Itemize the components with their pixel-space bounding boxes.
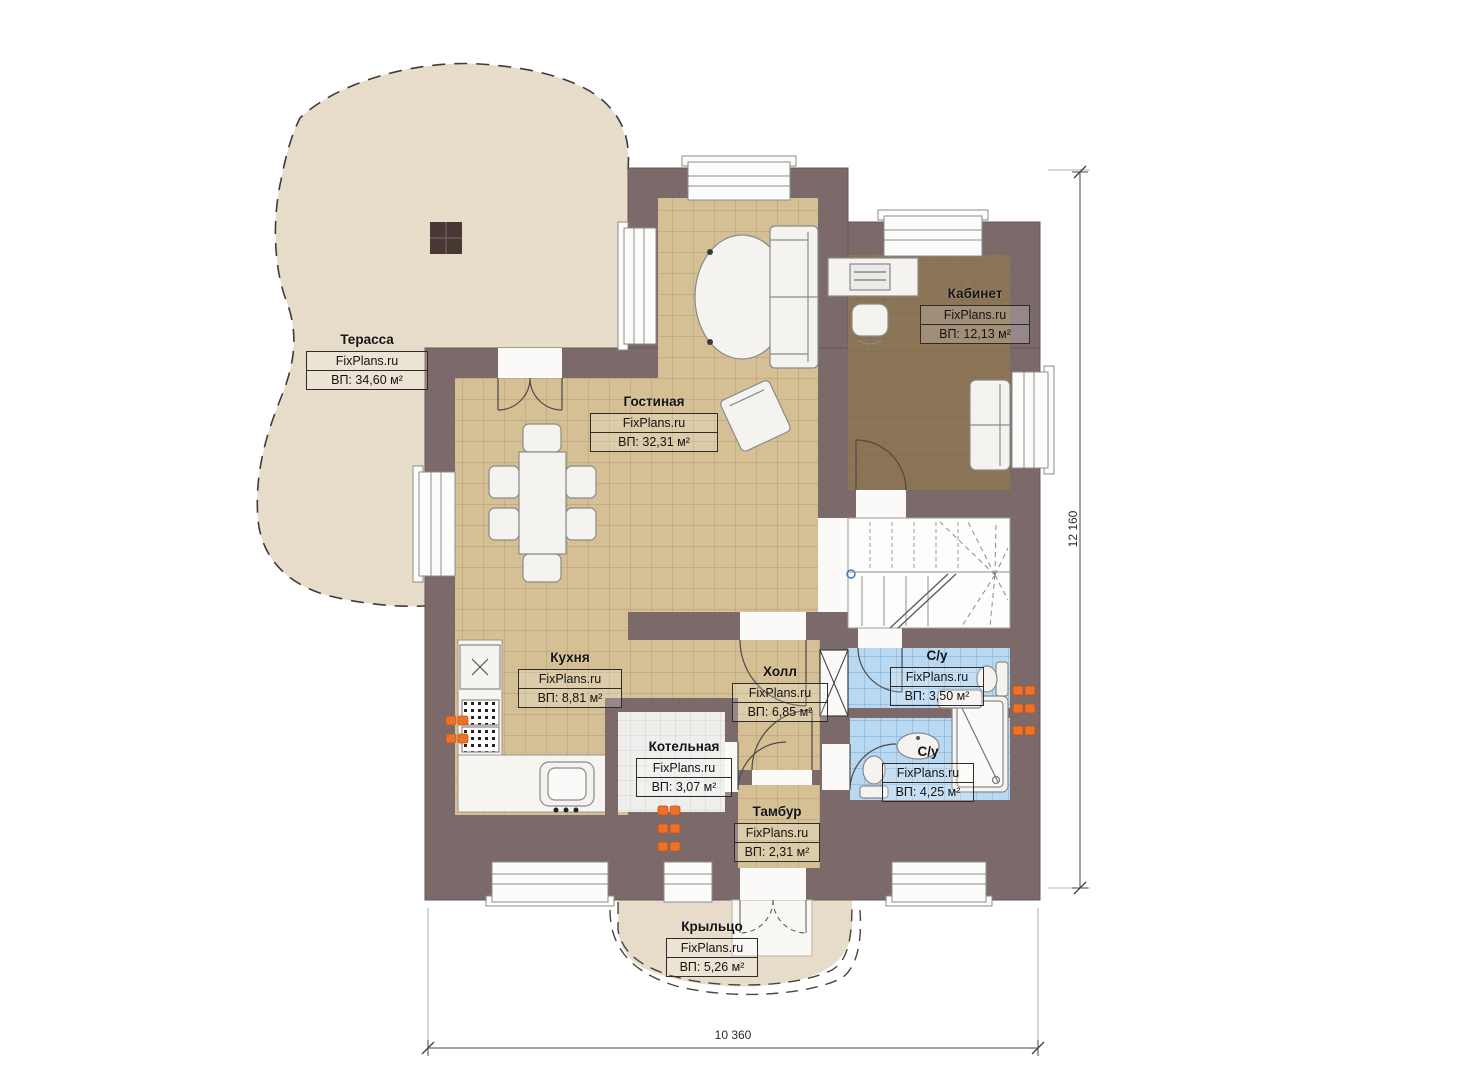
window-office-top	[878, 210, 988, 256]
room-label-hall: Холл FixPlans.ru ВП: 6,85 м²	[732, 664, 828, 722]
room-area: ВП: 2,31 м²	[734, 842, 820, 862]
room-name: С/у	[890, 648, 984, 664]
office-armchair-icon	[970, 380, 1010, 470]
room-label-office: Кабинет FixPlans.ru ВП: 12,13 м²	[920, 286, 1030, 344]
window-vestibule-side	[664, 862, 712, 902]
room-name: Холл	[732, 664, 828, 680]
room-area: ВП: 3,07 м²	[636, 777, 732, 797]
room-label-kitchen: Кухня FixPlans.ru ВП: 8,81 м²	[518, 650, 622, 708]
floor-plan-page: Терасса FixPlans.ru ВП: 34,60 м² Гостина…	[0, 0, 1474, 1080]
room-area: ВП: 3,50 м²	[890, 686, 984, 706]
sofa-icon	[770, 226, 818, 368]
terrace-column-icon	[430, 222, 462, 254]
room-label-porch: Крыльцо FixPlans.ru ВП: 5,26 м²	[666, 919, 758, 977]
room-name: Котельная	[636, 739, 732, 755]
room-area: ВП: 5,26 м²	[666, 957, 758, 977]
room-name: Терасса	[306, 332, 428, 348]
room-name: С/у	[882, 744, 974, 760]
room-name: Кабинет	[920, 286, 1030, 302]
room-label-wc-upper: С/у FixPlans.ru ВП: 3,50 м²	[890, 648, 984, 706]
watermark: FixPlans.ru	[734, 823, 820, 843]
room-area: ВП: 32,31 м²	[590, 432, 718, 452]
window-office-right	[1012, 366, 1054, 474]
window-living-top	[682, 156, 796, 200]
window-kitchen-bottom	[486, 862, 614, 906]
floor-stairs	[848, 518, 1010, 628]
watermark: FixPlans.ru	[666, 938, 758, 958]
dimension-width-label: 10 360	[688, 1028, 778, 1042]
room-name: Кухня	[518, 650, 622, 666]
window-living-left	[413, 466, 455, 582]
room-label-terrace: Терасса FixPlans.ru ВП: 34,60 м²	[306, 332, 428, 390]
stairs-opening	[818, 518, 848, 612]
room-name: Гостиная	[590, 394, 718, 410]
room-label-wc-lower: С/у FixPlans.ru ВП: 4,25 м²	[882, 744, 974, 802]
room-area: ВП: 4,25 м²	[882, 782, 974, 802]
floor-plan-drawing	[0, 0, 1474, 1080]
room-area: ВП: 34,60 м²	[306, 370, 428, 390]
watermark: FixPlans.ru	[590, 413, 718, 433]
watermark: FixPlans.ru	[306, 351, 428, 371]
room-area: ВП: 12,13 м²	[920, 324, 1030, 344]
watermark: FixPlans.ru	[636, 758, 732, 778]
room-area: ВП: 8,81 м²	[518, 688, 622, 708]
window-bottom-right	[886, 862, 992, 906]
room-label-boiler: Котельная FixPlans.ru ВП: 3,07 м²	[636, 739, 732, 797]
room-name: Тамбур	[734, 804, 820, 820]
sink-icon	[540, 762, 594, 813]
room-name: Крыльцо	[666, 919, 758, 935]
watermark: FixPlans.ru	[732, 683, 828, 703]
watermark: FixPlans.ru	[882, 763, 974, 783]
watermark: FixPlans.ru	[518, 669, 622, 689]
watermark: FixPlans.ru	[890, 667, 984, 687]
room-label-living: Гостиная FixPlans.ru ВП: 32,31 м²	[590, 394, 718, 452]
room-label-vestibule: Тамбур FixPlans.ru ВП: 2,31 м²	[734, 804, 820, 862]
desk-icon	[828, 258, 918, 296]
window-living-upper-left	[618, 222, 656, 350]
dimension-height-label: 12 160	[1066, 494, 1080, 564]
room-area: ВП: 6,85 м²	[732, 702, 828, 722]
watermark: FixPlans.ru	[920, 305, 1030, 325]
stove-icon	[460, 645, 500, 689]
